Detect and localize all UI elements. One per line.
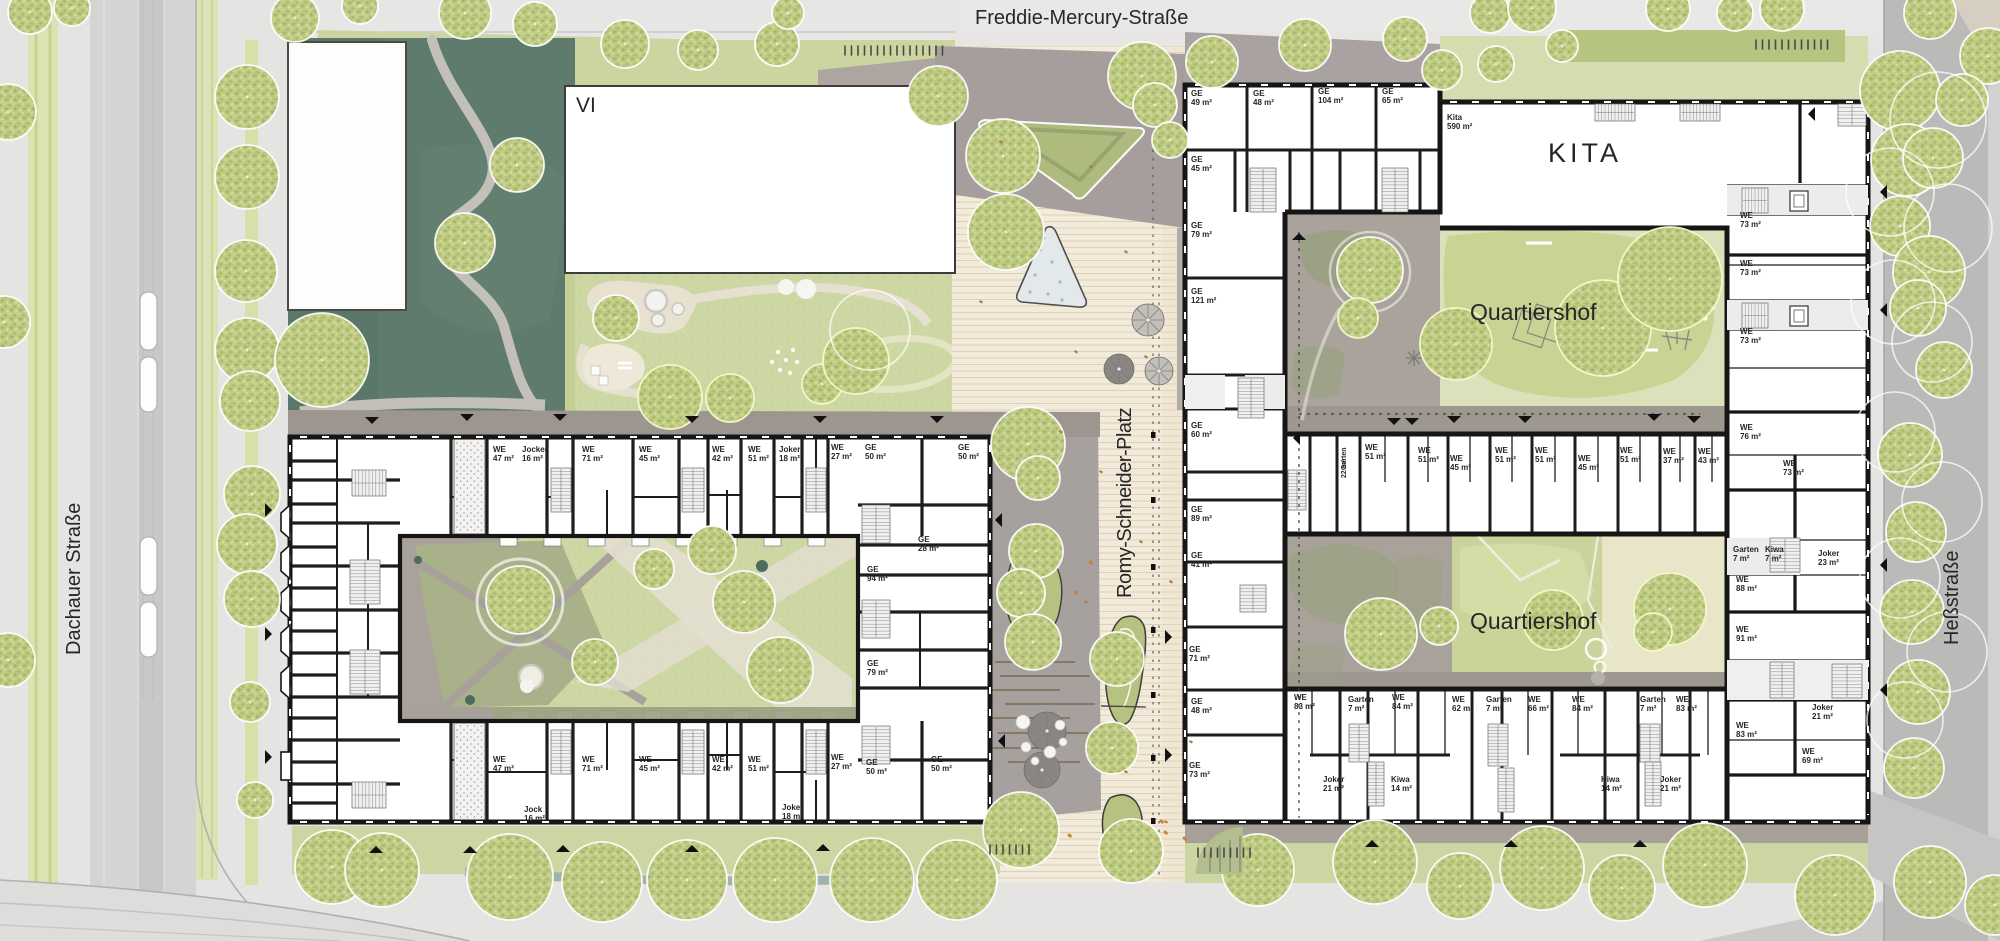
svg-text:51 m²: 51 m²: [1620, 455, 1641, 464]
svg-text:83 m²: 83 m²: [1736, 730, 1757, 739]
svg-text:Quartiershof: Quartiershof: [1470, 299, 1597, 325]
svg-text:WE: WE: [582, 445, 596, 454]
svg-text:WE: WE: [1802, 747, 1816, 756]
svg-text:WE: WE: [1676, 695, 1690, 704]
svg-text:GE: GE: [931, 755, 943, 764]
svg-text:GE: GE: [1318, 87, 1330, 96]
svg-text:GE: GE: [1191, 551, 1203, 560]
svg-text:590 m²: 590 m²: [1447, 122, 1473, 131]
svg-text:WE: WE: [1783, 459, 1797, 468]
svg-text:GE: GE: [1191, 505, 1203, 514]
svg-text:21 m²: 21 m²: [1660, 784, 1681, 793]
svg-text:16 m²: 16 m²: [522, 454, 543, 463]
svg-text:48 m²: 48 m²: [1191, 706, 1212, 715]
svg-text:GE: GE: [918, 535, 930, 544]
svg-text:45 m²: 45 m²: [1578, 463, 1599, 472]
svg-text:Joker: Joker: [779, 445, 800, 454]
svg-text:18 m²: 18 m²: [779, 454, 800, 463]
svg-text:WE: WE: [1740, 327, 1754, 336]
svg-text:GE: GE: [867, 565, 879, 574]
svg-text:62 m²: 62 m²: [1452, 704, 1473, 713]
svg-text:43 m²: 43 m²: [1698, 456, 1719, 465]
svg-text:WE: WE: [1450, 454, 1464, 463]
svg-text:45 m²: 45 m²: [639, 454, 660, 463]
svg-text:14 m²: 14 m²: [1601, 784, 1622, 793]
svg-text:GE: GE: [1189, 645, 1201, 654]
svg-text:69 m²: 69 m²: [1802, 756, 1823, 765]
svg-text:Garten: Garten: [1733, 545, 1759, 554]
svg-text:WE: WE: [748, 755, 762, 764]
svg-text:WE: WE: [1663, 447, 1677, 456]
svg-text:GE: GE: [1382, 87, 1394, 96]
svg-text:94 m²: 94 m²: [867, 574, 888, 583]
svg-text:71 m²: 71 m²: [582, 454, 603, 463]
svg-text:73 m²: 73 m²: [1189, 770, 1210, 779]
svg-text:Garten: Garten: [1640, 695, 1666, 704]
svg-text:WE: WE: [1452, 695, 1466, 704]
svg-text:79 m²: 79 m²: [1191, 230, 1212, 239]
svg-text:18 m²: 18 m²: [782, 812, 803, 821]
svg-text:41 m²: 41 m²: [1191, 560, 1212, 569]
svg-text:Garten: Garten: [1348, 695, 1374, 704]
svg-text:Kita: Kita: [1447, 113, 1463, 122]
svg-text:WE: WE: [1535, 446, 1549, 455]
svg-text:45 m²: 45 m²: [1191, 164, 1212, 173]
svg-text:71 m²: 71 m²: [582, 764, 603, 773]
svg-text:VI: VI: [576, 94, 596, 117]
svg-text:GE: GE: [1191, 221, 1203, 230]
svg-text:GE: GE: [1191, 421, 1203, 430]
svg-text:21 m²: 21 m²: [1812, 712, 1833, 721]
svg-text:84 m²: 84 m²: [1392, 702, 1413, 711]
svg-text:45 m²: 45 m²: [639, 764, 660, 773]
svg-text:Joker: Joker: [1818, 549, 1839, 558]
svg-text:47 m²: 47 m²: [493, 454, 514, 463]
svg-text:Kiwa: Kiwa: [1391, 775, 1410, 784]
svg-text:83 m²: 83 m²: [1676, 704, 1697, 713]
svg-text:WE: WE: [639, 755, 653, 764]
svg-text:73 m²: 73 m²: [1740, 268, 1761, 277]
svg-text:GE: GE: [865, 443, 877, 452]
svg-text:60 m²: 60 m²: [1191, 430, 1212, 439]
svg-text:WE: WE: [712, 445, 726, 454]
svg-text:51 m²: 51 m²: [748, 764, 769, 773]
svg-text:WE: WE: [831, 443, 845, 452]
svg-text:Joker: Joker: [1812, 703, 1833, 712]
svg-text:83 m²: 83 m²: [1294, 702, 1315, 711]
svg-text:WE: WE: [493, 445, 507, 454]
svg-text:71 m²: 71 m²: [1189, 654, 1210, 663]
svg-text:47 m²: 47 m²: [493, 764, 514, 773]
svg-text:Kiwa: Kiwa: [1765, 545, 1784, 554]
svg-text:22 m²: 22 m²: [1341, 459, 1348, 478]
svg-text:48 m²: 48 m²: [1253, 98, 1274, 107]
svg-text:50 m²: 50 m²: [958, 452, 979, 461]
svg-text:45 m²: 45 m²: [1450, 463, 1471, 472]
svg-text:91 m²: 91 m²: [1736, 634, 1757, 643]
svg-text:7 m²: 7 m²: [1733, 554, 1750, 563]
svg-text:51 m²: 51 m²: [748, 454, 769, 463]
svg-text:WE: WE: [1740, 211, 1754, 220]
svg-text:73 m²: 73 m²: [1740, 336, 1761, 345]
svg-text:51 m²: 51 m²: [1365, 452, 1386, 461]
svg-text:Garten: Garten: [1486, 695, 1512, 704]
svg-text:76 m²: 76 m²: [1740, 432, 1761, 441]
svg-text:GE: GE: [1191, 287, 1203, 296]
svg-text:WE: WE: [1736, 575, 1750, 584]
svg-text:WE: WE: [831, 753, 845, 762]
svg-text:WE: WE: [1620, 446, 1634, 455]
svg-text:WE: WE: [493, 755, 507, 764]
svg-text:27 m²: 27 m²: [831, 762, 852, 771]
svg-text:65 m²: 65 m²: [1382, 96, 1403, 105]
svg-text:WE: WE: [1740, 423, 1754, 432]
svg-text:66 m²: 66 m²: [1528, 704, 1549, 713]
svg-text:WE: WE: [1418, 446, 1432, 455]
svg-text:WE: WE: [1736, 625, 1750, 634]
svg-text:Freddie-Mercury-Straße: Freddie-Mercury-Straße: [975, 7, 1188, 29]
svg-text:28 m²: 28 m²: [918, 544, 939, 553]
svg-text:7 m²: 7 m²: [1486, 704, 1503, 713]
svg-text:51 m²: 51 m²: [1535, 455, 1556, 464]
svg-text:27 m²: 27 m²: [831, 452, 852, 461]
svg-text:73 m²: 73 m²: [1740, 220, 1761, 229]
svg-text:21 m²: 21 m²: [1323, 784, 1344, 793]
svg-text:50 m²: 50 m²: [931, 764, 952, 773]
svg-text:51 m²: 51 m²: [1495, 455, 1516, 464]
svg-text:50 m²: 50 m²: [866, 767, 887, 776]
svg-text:104 m²: 104 m²: [1318, 96, 1344, 105]
svg-text:GE: GE: [1253, 89, 1265, 98]
svg-text:WE: WE: [1572, 695, 1586, 704]
svg-text:50 m²: 50 m²: [865, 452, 886, 461]
svg-text:7 m²: 7 m²: [1765, 554, 1782, 563]
svg-text:WE: WE: [1495, 446, 1509, 455]
svg-text:WE: WE: [712, 755, 726, 764]
svg-text:WE: WE: [582, 755, 596, 764]
svg-text:42 m²: 42 m²: [712, 764, 733, 773]
svg-text:Joker: Joker: [782, 803, 803, 812]
svg-text:51 m²: 51 m²: [1418, 455, 1439, 464]
svg-text:WE: WE: [1528, 695, 1542, 704]
svg-text:84 m²: 84 m²: [1572, 704, 1593, 713]
svg-text:16 m²: 16 m²: [524, 814, 545, 823]
svg-text:KITA: KITA: [1548, 138, 1622, 168]
svg-text:Kiwa: Kiwa: [1601, 775, 1620, 784]
svg-text:23 m²: 23 m²: [1818, 558, 1839, 567]
svg-text:Joker: Joker: [1660, 775, 1681, 784]
svg-text:7 m²: 7 m²: [1348, 704, 1365, 713]
svg-text:WE: WE: [639, 445, 653, 454]
svg-text:WE: WE: [1740, 259, 1754, 268]
svg-text:WE: WE: [748, 445, 762, 454]
svg-text:GE: GE: [1191, 697, 1203, 706]
svg-text:Romy-Schneider-Platz: Romy-Schneider-Platz: [1114, 408, 1136, 598]
svg-text:Joker: Joker: [1323, 775, 1344, 784]
svg-text:Jock: Jock: [524, 805, 543, 814]
svg-text:GE: GE: [866, 758, 878, 767]
svg-text:Jocker: Jocker: [522, 445, 548, 454]
svg-text:7 m²: 7 m²: [1640, 704, 1657, 713]
svg-text:88 m²: 88 m²: [1736, 584, 1757, 593]
svg-text:GE: GE: [1191, 89, 1203, 98]
svg-text:Dachauer Straße: Dachauer Straße: [63, 503, 85, 655]
svg-text:73 m²: 73 m²: [1783, 468, 1804, 477]
svg-text:14 m²: 14 m²: [1391, 784, 1412, 793]
svg-text:WE: WE: [1736, 721, 1750, 730]
svg-text:WE: WE: [1578, 454, 1592, 463]
svg-text:37 m²: 37 m²: [1663, 456, 1684, 465]
svg-text:49 m²: 49 m²: [1191, 98, 1212, 107]
svg-text:WE: WE: [1294, 693, 1308, 702]
svg-text:GE: GE: [958, 443, 970, 452]
svg-text:GE: GE: [867, 659, 879, 668]
svg-text:121 m²: 121 m²: [1191, 296, 1217, 305]
svg-text:WE: WE: [1392, 693, 1406, 702]
svg-text:WE: WE: [1698, 447, 1712, 456]
svg-text:89 m²: 89 m²: [1191, 514, 1212, 523]
svg-text:WE: WE: [1365, 443, 1379, 452]
svg-text:79 m²: 79 m²: [867, 668, 888, 677]
svg-text:Heßstraße: Heßstraße: [1941, 551, 1963, 645]
svg-text:Quartiershof: Quartiershof: [1470, 608, 1597, 634]
svg-text:GE: GE: [1191, 155, 1203, 164]
svg-text:GE: GE: [1189, 761, 1201, 770]
svg-text:42 m²: 42 m²: [712, 454, 733, 463]
